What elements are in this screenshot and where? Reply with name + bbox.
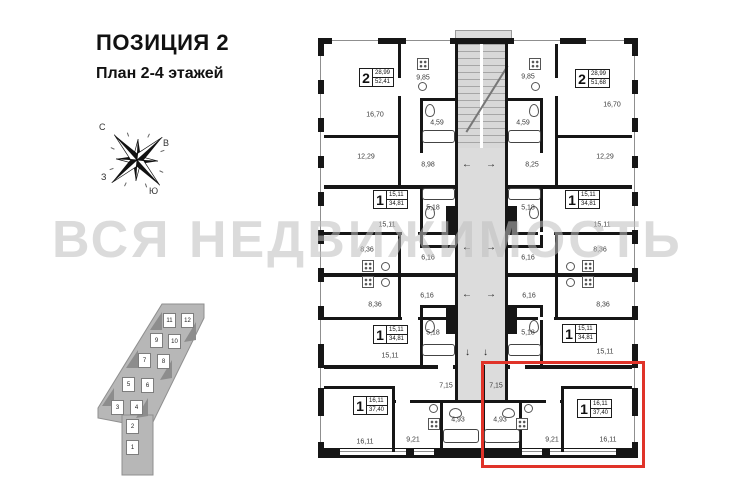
site-block-12: 12: [181, 313, 194, 328]
window: [632, 206, 638, 230]
site-plan: 1 2 3 4 5 6 7 8 9 10 11 12: [96, 296, 226, 486]
door-opening: [438, 365, 453, 369]
corridor-arrow-down-icon: ↓: [483, 348, 488, 358]
window: [318, 244, 324, 268]
window: [318, 282, 324, 306]
room-area-label: 15,11: [597, 349, 614, 356]
apartment-total-area: 37,40: [367, 406, 387, 415]
window: [318, 368, 324, 388]
stove-icon: [362, 276, 374, 288]
apartment-total-area: 34,81: [579, 200, 599, 209]
compass-label-south: Ю: [149, 186, 158, 196]
corridor-arrow-left-icon: ←: [462, 160, 472, 170]
site-block-10: 10: [168, 334, 181, 349]
room-area-label: 8,98: [421, 162, 435, 169]
wall: [558, 135, 632, 138]
window: [318, 56, 324, 80]
corridor-arrow-left-icon: ←: [462, 243, 472, 253]
window: [318, 416, 324, 442]
wall: [555, 232, 558, 276]
door-opening: [398, 78, 401, 96]
wall: [508, 98, 543, 101]
corridor-arrow-right-icon: →: [486, 243, 496, 253]
room-area-label: 9,21: [406, 437, 420, 444]
room-area-label: 16,70: [603, 102, 621, 109]
wall: [508, 305, 543, 308]
window: [632, 282, 638, 306]
room-area-label: 5,18: [521, 330, 535, 337]
sink-icon: [381, 262, 390, 271]
sink-icon: [566, 262, 575, 271]
bathtub-icon: [422, 130, 455, 143]
room-area-label: 5,18: [426, 330, 440, 337]
room-area-label: 6,16: [521, 255, 535, 262]
apartment-living-area: 15,11: [387, 191, 407, 200]
sink-icon: [418, 82, 427, 91]
wall: [505, 273, 632, 277]
window: [318, 94, 324, 118]
compass-label-west: З: [101, 172, 106, 182]
toilet-icon: [529, 104, 539, 117]
apartment-rooms-count: 1: [374, 326, 387, 343]
bathtub-icon: [508, 344, 541, 356]
page-title: ПОЗИЦИЯ 2: [96, 30, 229, 56]
wall: [324, 317, 458, 320]
wall: [324, 386, 392, 389]
sink-icon: [429, 404, 438, 413]
apartment-living-area: 15,11: [387, 326, 407, 335]
window: [632, 320, 638, 344]
real-estate-floorplan-page: ПОЗИЦИЯ 2 План 2-4 этажей: [0, 0, 750, 500]
room-area-label: 6,16: [421, 255, 435, 262]
apartment-total-area: 34,81: [576, 334, 596, 343]
apartment-tag: 1 15,1134,81: [373, 325, 408, 344]
window: [632, 132, 638, 156]
site-block-3: 3: [111, 400, 124, 415]
compass-star-icon: [99, 122, 175, 198]
window: [632, 244, 638, 268]
window: [332, 38, 378, 44]
door-opening: [555, 78, 558, 96]
window: [318, 206, 324, 230]
corridor-arrow-right-icon: →: [486, 290, 496, 300]
room-area-label: 8,36: [360, 247, 374, 254]
window: [632, 94, 638, 118]
header: ПОЗИЦИЯ 2 План 2-4 этажей: [96, 30, 229, 83]
corridor-arrow-down-icon: ↓: [465, 348, 470, 358]
apartment-total-area: 34,81: [387, 335, 407, 344]
wall: [505, 232, 632, 235]
stove-icon: [529, 58, 541, 70]
site-block-6: 6: [141, 378, 154, 393]
apartment-total-area: 52,41: [373, 78, 393, 87]
room-area-label: 9,85: [521, 74, 535, 81]
window: [514, 38, 560, 44]
wall: [555, 44, 558, 185]
stair-flight-divider: [480, 44, 483, 148]
room-area-label: 9,85: [416, 75, 430, 82]
room-area-label: 4,59: [516, 120, 530, 127]
bathtub-icon: [422, 344, 455, 356]
door-opening: [396, 400, 410, 403]
apartment-rooms-count: 2: [576, 70, 589, 87]
wall: [324, 273, 458, 277]
room-area-label: 6,16: [522, 293, 536, 300]
stove-icon: [362, 260, 374, 272]
bathtub-icon: [422, 188, 455, 200]
site-block-5: 5: [122, 377, 135, 392]
apartment-tag: 2 28,9951,68: [575, 69, 610, 88]
bathtub-icon: [508, 130, 541, 143]
wall: [398, 232, 401, 276]
wall: [540, 98, 543, 153]
shaft-block: [505, 306, 517, 334]
room-area-label: 6,16: [420, 293, 434, 300]
wall: [420, 98, 458, 101]
site-block-4: 4: [130, 400, 143, 415]
room-area-label: 16,70: [366, 112, 384, 119]
apartment-tag: 1 16,1137,40: [353, 396, 388, 415]
apartment-total-area: 34,81: [387, 200, 407, 209]
compass-label-north: С: [99, 122, 106, 132]
shaft-block: [446, 206, 458, 234]
wall: [508, 245, 543, 248]
apartment-living-area: 28,99: [373, 69, 393, 78]
apartment-tag: 1 15,1134,81: [373, 190, 408, 209]
shaft-block: [446, 306, 458, 334]
wall: [440, 400, 443, 452]
bathtub-icon: [443, 429, 479, 443]
site-block-7: 7: [138, 353, 151, 368]
door-opening: [402, 317, 418, 320]
toilet-icon: [425, 104, 435, 117]
room-area-label: 8,36: [593, 247, 607, 254]
room-area-label: 5,18: [426, 205, 440, 212]
window: [340, 449, 406, 455]
wall: [420, 98, 423, 153]
compass-rose-icon: С В З Ю: [99, 122, 175, 198]
apartment-rooms-count: 1: [374, 191, 387, 208]
compass-label-east: В: [163, 138, 169, 148]
window: [414, 449, 434, 455]
apartment-rooms-count: 1: [563, 325, 576, 342]
apartment-living-area: 16,11: [367, 397, 387, 406]
shaft-block: [505, 206, 517, 234]
apartment-living-area: 28,99: [589, 70, 609, 79]
site-block-8: 8: [157, 354, 170, 369]
room-area-label: 4,59: [430, 120, 444, 127]
room-area-label: 8,36: [368, 302, 382, 309]
wall: [324, 135, 398, 138]
stove-icon: [417, 58, 429, 70]
door-opening: [538, 317, 554, 320]
sink-icon: [566, 278, 575, 287]
room-area-label: 15,11: [379, 222, 396, 229]
stove-icon: [582, 276, 594, 288]
apartment-rooms-count: 1: [354, 397, 367, 414]
wall: [420, 305, 423, 368]
apartment-living-area: 15,11: [579, 191, 599, 200]
apartment-total-area: 51,68: [589, 79, 609, 88]
apartment-rooms-count: 1: [566, 191, 579, 208]
site-block-1: 1: [126, 440, 139, 455]
window: [406, 38, 450, 44]
stove-icon: [428, 418, 440, 430]
room-area-label: 12,29: [596, 154, 614, 161]
site-block-9: 9: [150, 333, 163, 348]
door-opening: [402, 232, 418, 235]
stove-icon: [582, 260, 594, 272]
window: [318, 320, 324, 344]
apartment-rooms-count: 2: [360, 69, 373, 86]
room-area-label: 12,29: [357, 154, 375, 161]
room-area-label: 5,18: [521, 205, 535, 212]
room-area-label: 8,25: [525, 162, 539, 169]
wall: [392, 386, 395, 452]
window: [586, 38, 624, 44]
apartment-tag: 1 15,1134,81: [562, 324, 597, 343]
room-area-label: 4,93: [451, 417, 465, 424]
wall: [398, 276, 401, 320]
corridor-arrow-right-icon: →: [486, 160, 496, 170]
wall: [398, 44, 401, 185]
room-area-label: 7,15: [439, 383, 453, 390]
sink-icon: [531, 82, 540, 91]
corridor-arrow-left-icon: ←: [462, 290, 472, 300]
wall: [505, 317, 632, 320]
window: [632, 56, 638, 80]
site-plan-outline: [96, 296, 226, 486]
wall: [420, 305, 458, 308]
wall: [540, 305, 543, 368]
site-block-2: 2: [126, 419, 139, 434]
window: [632, 168, 638, 192]
site-block-11: 11: [163, 313, 176, 328]
wall: [324, 232, 458, 235]
page-subtitle: План 2-4 этажей: [96, 65, 229, 83]
room-area-label: 15,11: [382, 353, 399, 360]
wall: [420, 245, 458, 248]
sink-icon: [381, 278, 390, 287]
wall: [555, 276, 558, 320]
apartment-tag: 1 15,1134,81: [565, 190, 600, 209]
room-area-label: 15,11: [594, 222, 611, 229]
room-area-label: 16,11: [357, 439, 374, 446]
apartment-tag: 2 28,9952,41: [359, 68, 394, 87]
door-opening: [538, 232, 554, 235]
bathtub-icon: [508, 188, 541, 200]
apartment-living-area: 15,11: [576, 325, 596, 334]
room-area-label: 8,36: [596, 302, 610, 309]
highlight-box: [481, 361, 645, 468]
